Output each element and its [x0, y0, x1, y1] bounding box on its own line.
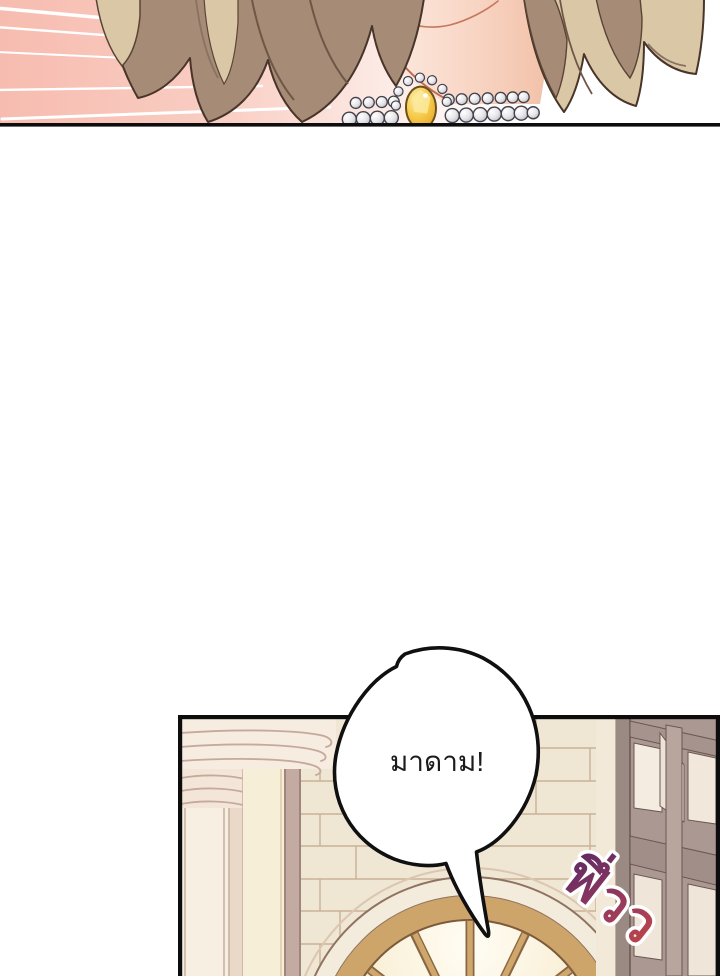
pilaster [284, 769, 301, 976]
top-panel-border [0, 123, 720, 127]
wall-strip [243, 769, 284, 976]
comic-page: ฟึ่วว มาดาม! [0, 0, 720, 976]
comic-art: ฟึ่วว มาดาม! [0, 0, 720, 976]
column [180, 769, 246, 976]
speech-bubble-text: มาดาม! [390, 746, 484, 777]
door-inset-top-left [634, 743, 662, 812]
top-panel [0, 0, 720, 131]
cornice [180, 717, 336, 775]
door-stile [666, 725, 682, 976]
door-inset-bottom-right [688, 884, 716, 976]
door-inset-top-right [688, 752, 716, 824]
